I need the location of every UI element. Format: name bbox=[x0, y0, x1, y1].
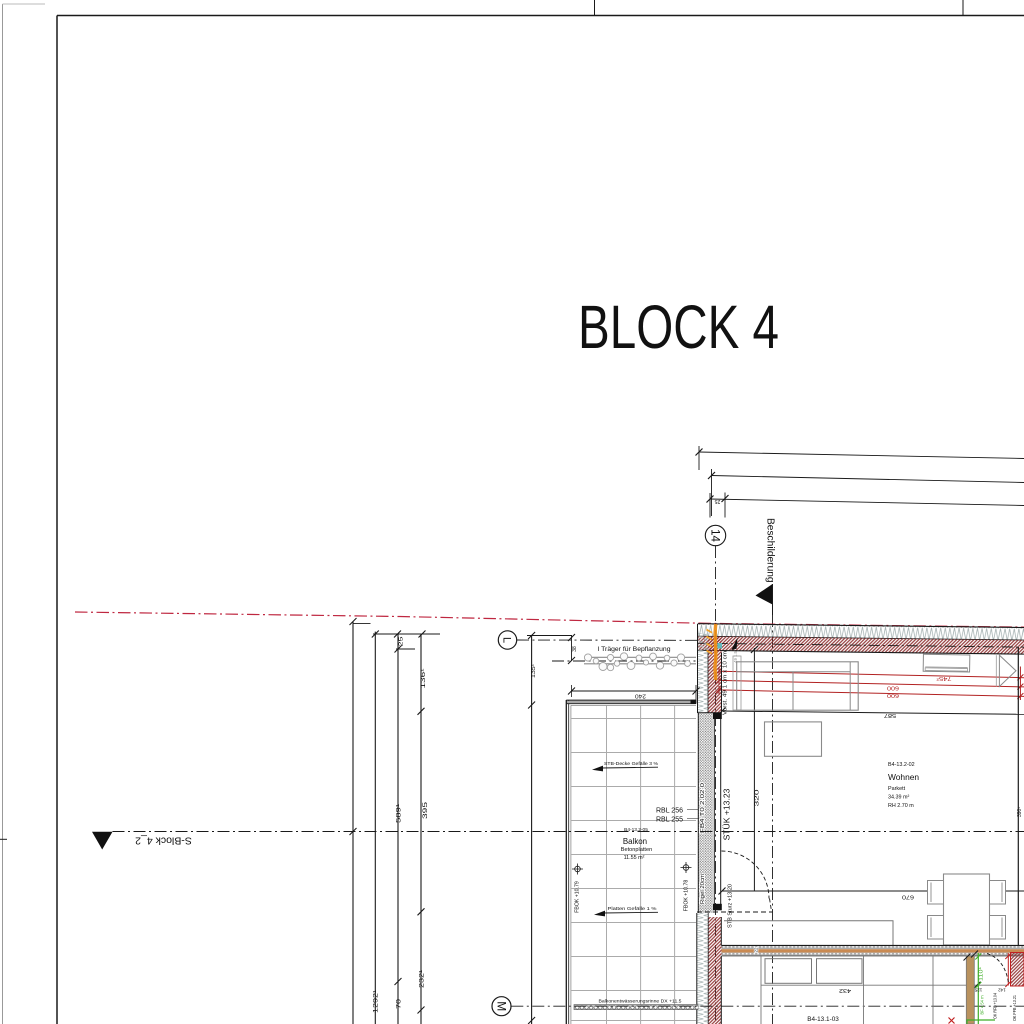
svg-text:600: 600 bbox=[887, 692, 899, 698]
svg-text:110¹: 110¹ bbox=[979, 967, 985, 981]
svg-text:600: 600 bbox=[887, 685, 899, 691]
svg-text:Platten Gefälle 1 %: Platten Gefälle 1 % bbox=[608, 906, 658, 912]
svg-text:M: M bbox=[494, 1001, 508, 1011]
svg-text:22: 22 bbox=[754, 947, 759, 953]
svg-text:34.39 m²: 34.39 m² bbox=[888, 795, 909, 801]
svg-text:Wohnen: Wohnen bbox=[888, 772, 919, 782]
svg-text:L: L bbox=[500, 637, 512, 643]
svg-text:Balkonentwässerungsrinne DX +1: Balkonentwässerungsrinne DX +11.5 bbox=[599, 999, 682, 1005]
svg-text:FBOK +10.79: FBOK +10.79 bbox=[575, 881, 581, 913]
svg-text:587: 587 bbox=[884, 712, 896, 718]
svg-text:BF 4.54 m: BF 4.54 m bbox=[980, 995, 985, 1015]
svg-text:38: 38 bbox=[572, 646, 578, 652]
svg-text:B4-13.1-03: B4-13.1-03 bbox=[807, 1016, 839, 1023]
svg-text:STB-Decke Gefälle 3 %: STB-Decke Gefälle 3 % bbox=[604, 761, 658, 766]
svg-text:432: 432 bbox=[839, 987, 851, 993]
svg-text:70: 70 bbox=[397, 998, 403, 1009]
svg-text:OK FFB +13.21: OK FFB +13.21 bbox=[1012, 994, 1017, 1021]
svg-text:Betonplatten: Betonplatten bbox=[621, 847, 652, 853]
svg-text:1292¹: 1292¹ bbox=[374, 990, 380, 1013]
svg-text:745²: 745² bbox=[936, 675, 951, 681]
svg-text:670: 670 bbox=[902, 894, 914, 900]
svg-text:25: 25 bbox=[715, 498, 721, 504]
svg-text:B4-13.2-05: B4-13.2-05 bbox=[624, 827, 648, 833]
svg-text:125: 125 bbox=[974, 987, 982, 992]
svg-text:49 1.5: 49 1.5 bbox=[733, 651, 738, 663]
svg-text:136¹: 136¹ bbox=[421, 669, 427, 689]
svg-text:OK RFB +13.04: OK RFB +13.04 bbox=[993, 992, 998, 1019]
svg-text:25: 25 bbox=[399, 637, 405, 647]
svg-text:B4-13.2-02: B4-13.2-02 bbox=[888, 762, 915, 768]
svg-text:395: 395 bbox=[423, 801, 429, 819]
svg-text:Parkett: Parkett bbox=[888, 786, 906, 792]
svg-text:FB4 T0 2.02 0: FB4 T0 2.02 0 bbox=[700, 783, 706, 833]
svg-text:Rigel 20cm: Rigel 20cm bbox=[700, 873, 706, 904]
svg-text:S-Block 4_2: S-Block 4_2 bbox=[135, 834, 192, 846]
svg-text:Balkon: Balkon bbox=[623, 837, 647, 846]
svg-text:589¹: 589¹ bbox=[397, 804, 403, 823]
svg-text:STÜK +13.23: STÜK +13.23 bbox=[722, 788, 732, 840]
svg-text:I Träger für Bepflanzung: I Träger für Bepflanzung bbox=[598, 646, 672, 653]
svg-text:390¹: 390¹ bbox=[1017, 807, 1023, 817]
svg-text:232¹: 232¹ bbox=[420, 970, 426, 988]
svg-text:14: 14 bbox=[709, 529, 721, 542]
svg-text:RH 2.70 m: RH 2.70 m bbox=[888, 803, 914, 809]
svg-text:135¹: 135¹ bbox=[531, 664, 537, 678]
svg-text:RBL 256: RBL 256 bbox=[656, 808, 683, 815]
svg-text:142: 142 bbox=[998, 987, 1006, 992]
svg-text:240: 240 bbox=[635, 692, 646, 698]
svg-text:Beschilderung: Beschilderung bbox=[765, 518, 776, 583]
svg-text:320: 320 bbox=[755, 790, 761, 807]
svg-text:BLOCK 4: BLOCK 4 bbox=[578, 293, 779, 362]
svg-text:FBOK +10.78: FBOK +10.78 bbox=[684, 880, 690, 912]
svg-text:Vorst. 49 1 cm x 10 cm: Vorst. 49 1 cm x 10 cm bbox=[723, 651, 729, 715]
svg-text:11.55 m²: 11.55 m² bbox=[624, 855, 645, 861]
svg-text:RBL 255: RBL 255 bbox=[656, 817, 683, 824]
